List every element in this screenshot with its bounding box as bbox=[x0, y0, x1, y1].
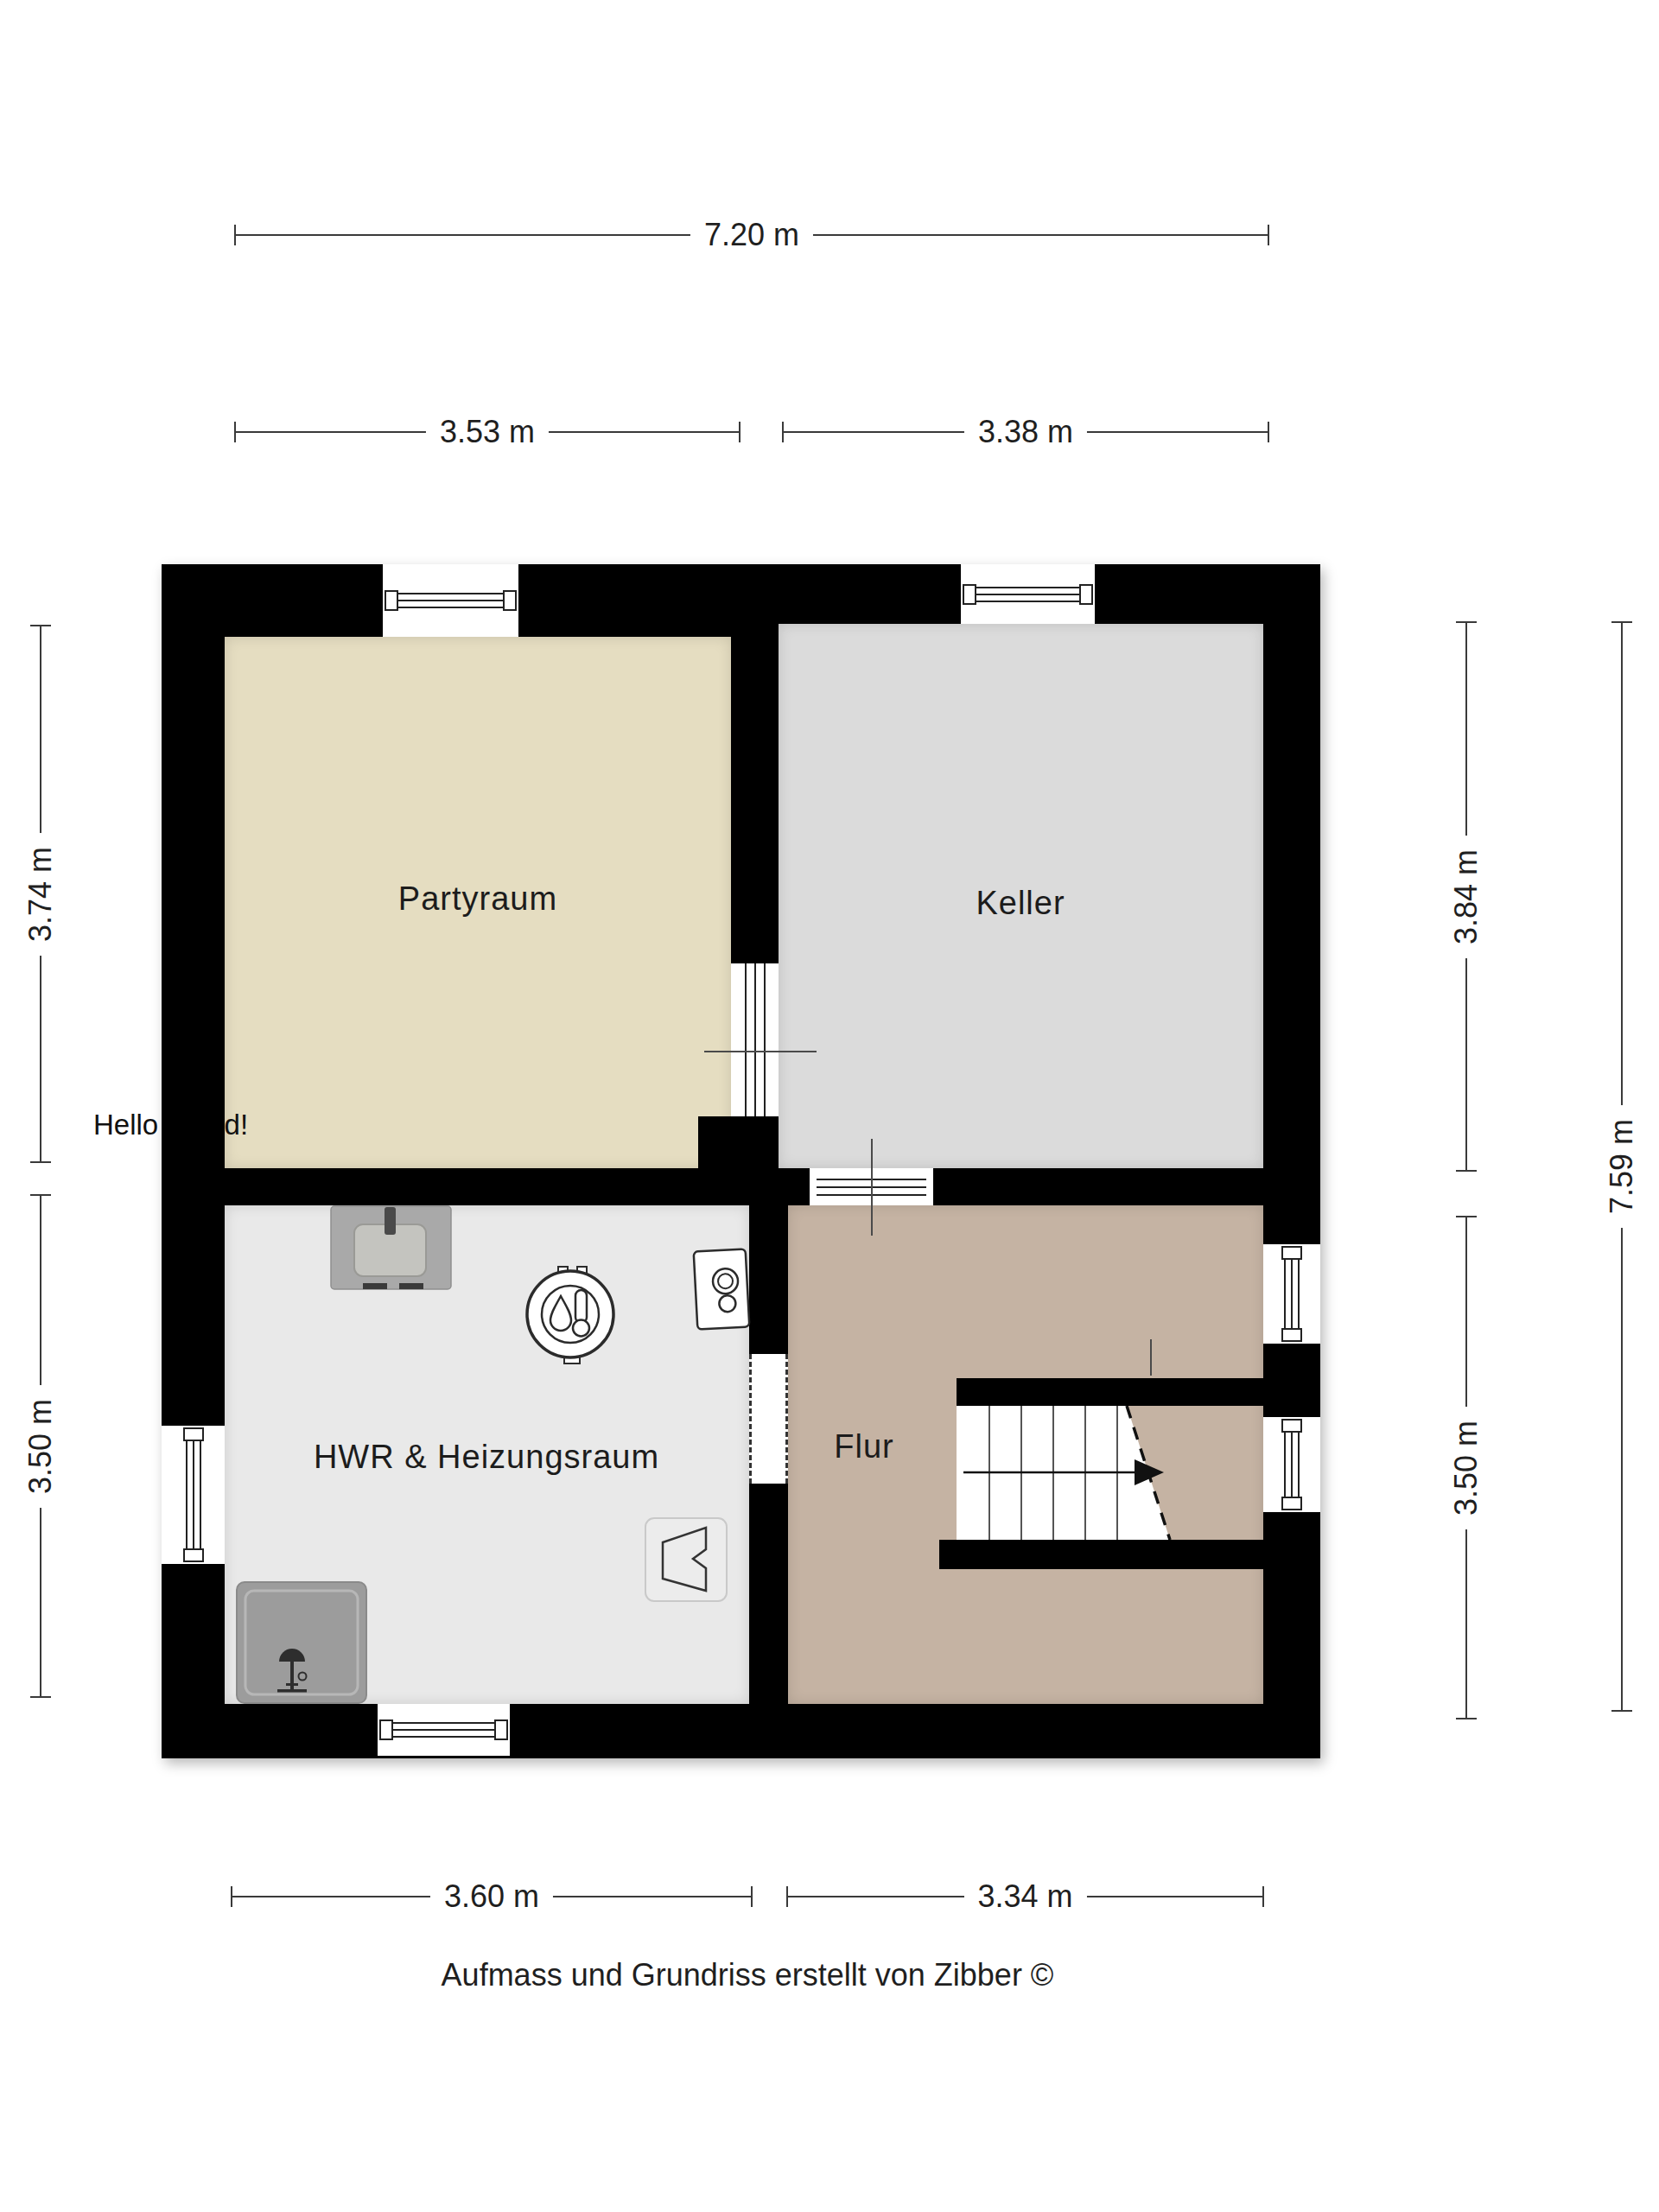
dim-left-upper-label: 3.74 m bbox=[21, 832, 60, 955]
shower-tray-icon bbox=[236, 1581, 367, 1704]
boiler-thermometer-icon bbox=[522, 1264, 619, 1366]
footer-credit-text: Aufmass und Grundriss erstellt von Zibbe… bbox=[162, 1957, 1333, 1993]
dim-right-lower-tick-b bbox=[1456, 1718, 1477, 1719]
dim-right-upper-tick-a bbox=[1456, 621, 1477, 623]
dim-top-left-tick-b bbox=[739, 422, 741, 442]
fusebox-icon bbox=[644, 1516, 728, 1603]
window-hwr-left-glazing bbox=[186, 1434, 201, 1555]
dim-right-lower-label: 3.50 m bbox=[1446, 1406, 1486, 1529]
dim-total-height-tick-b bbox=[1611, 1710, 1632, 1712]
window-flur-right-upper-glazing bbox=[1284, 1253, 1300, 1335]
dim-bottom-left-tick-a bbox=[231, 1886, 232, 1907]
window-flur-right-upper-cap-b bbox=[1281, 1328, 1302, 1342]
hello-wall-cover bbox=[162, 1090, 225, 1161]
dim-right-upper-tick-b bbox=[1456, 1170, 1477, 1172]
window-partyraum-top-cap-a bbox=[385, 590, 398, 611]
shower-tray-icon bbox=[236, 1581, 367, 1704]
dim-top-right-tick-b bbox=[1268, 422, 1269, 442]
dim-total-width-tick-b bbox=[1268, 225, 1269, 245]
door-partyraum-keller-swing bbox=[704, 1051, 817, 1052]
window-keller-top-cap-a bbox=[963, 584, 976, 605]
dim-total-height-label: 7.59 m bbox=[1602, 1105, 1642, 1228]
dim-top-left-label: 3.53 m bbox=[426, 412, 549, 452]
stair-lower-wall bbox=[939, 1540, 1265, 1569]
window-hwr-bottom-cap-a bbox=[379, 1719, 393, 1740]
stair-entry-mark bbox=[1150, 1339, 1152, 1376]
dim-bottom-right-label: 3.34 m bbox=[963, 1877, 1086, 1916]
dim-top-right-tick-a bbox=[782, 422, 784, 442]
window-hwr-bottom-glazing bbox=[386, 1722, 501, 1738]
room-label-partyraum: Partyraum bbox=[398, 880, 557, 918]
dim-bottom-left-tick-b bbox=[751, 1886, 753, 1907]
dim-total-height-tick-a bbox=[1611, 621, 1632, 623]
door-partyraum-keller-leaf bbox=[745, 963, 766, 1116]
socket-meter-icon bbox=[691, 1247, 752, 1332]
stair-upper-wall bbox=[957, 1378, 1265, 1406]
socket-meter-icon bbox=[691, 1247, 752, 1332]
floorplan-canvas: Hello World! PartyraumKellerHWR & Heizun… bbox=[0, 0, 1659, 2212]
window-keller-top-cap-b bbox=[1079, 584, 1093, 605]
room-label-keller: Keller bbox=[976, 885, 1065, 922]
window-stairs-right-cap-b bbox=[1281, 1497, 1302, 1510]
sink-icon bbox=[330, 1205, 452, 1290]
door-step-block bbox=[698, 1116, 733, 1168]
window-stairs-right-cap-a bbox=[1281, 1419, 1302, 1433]
dim-bottom-right-tick-a bbox=[786, 1886, 788, 1907]
dim-bottom-right-tick-b bbox=[1262, 1886, 1264, 1907]
dim-left-lower-label: 3.50 m bbox=[21, 1384, 60, 1507]
dim-left-lower-tick-b bbox=[30, 1696, 51, 1698]
window-hwr-left-cap-b bbox=[183, 1548, 204, 1562]
dim-right-upper-label: 3.84 m bbox=[1446, 835, 1486, 957]
window-flur-right-upper-cap-a bbox=[1281, 1246, 1302, 1260]
dim-left-lower-tick-a bbox=[30, 1194, 51, 1196]
staircase bbox=[938, 1376, 1265, 1571]
dim-bottom-left-label: 3.60 m bbox=[430, 1877, 553, 1916]
boiler-thermometer-icon bbox=[522, 1264, 619, 1366]
room-label-hwr: HWR & Heizungsraum bbox=[314, 1439, 659, 1476]
window-keller-top-glazing bbox=[969, 587, 1086, 602]
dim-left-upper-tick-b bbox=[30, 1161, 51, 1163]
dim-top-right-label: 3.38 m bbox=[964, 412, 1087, 452]
room-label-flur: Flur bbox=[834, 1428, 893, 1465]
door-keller-flur-swing bbox=[871, 1139, 873, 1236]
window-partyraum-top-cap-b bbox=[503, 590, 517, 611]
door-hwr-flur bbox=[749, 1354, 788, 1484]
sink-icon bbox=[330, 1205, 452, 1290]
dim-right-lower-tick-a bbox=[1456, 1216, 1477, 1217]
dim-total-width-tick-a bbox=[234, 225, 236, 245]
window-hwr-bottom-cap-b bbox=[494, 1719, 508, 1740]
window-partyraum-top-glazing bbox=[391, 593, 510, 608]
fusebox-icon bbox=[644, 1516, 728, 1603]
window-stairs-right-glazing bbox=[1284, 1426, 1300, 1503]
dim-total-width-label: 7.20 m bbox=[690, 215, 813, 255]
window-hwr-left-cap-a bbox=[183, 1427, 204, 1441]
dim-left-upper-tick-a bbox=[30, 625, 51, 626]
dim-top-left-tick-a bbox=[234, 422, 236, 442]
